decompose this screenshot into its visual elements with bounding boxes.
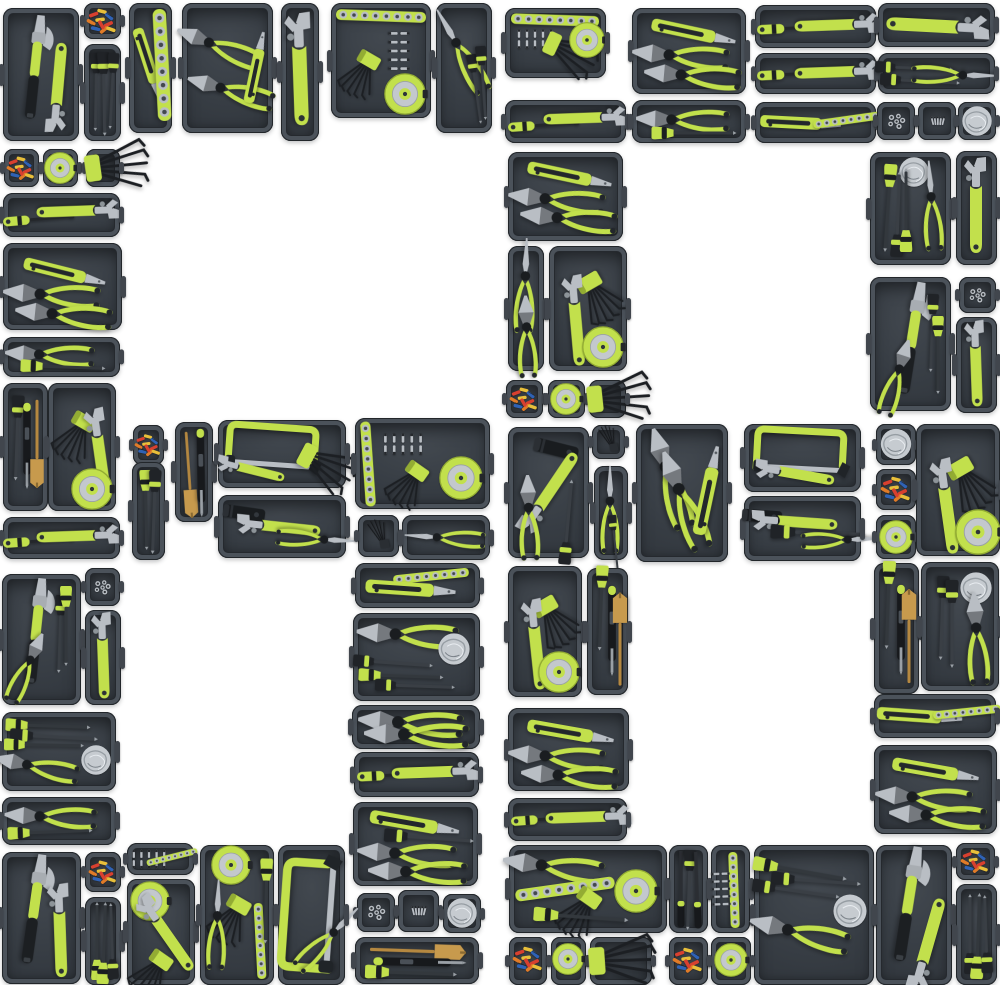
organizer-tray	[85, 897, 121, 985]
organizer-tray	[874, 563, 919, 694]
organizer-bin	[398, 890, 439, 932]
organizer-tray	[632, 100, 746, 143]
tray-contents	[711, 937, 751, 985]
tray-contents	[551, 937, 586, 985]
tray-contents	[587, 568, 628, 695]
combination-pliers-tool	[4, 342, 94, 368]
adjustable-wrench-tool	[964, 320, 987, 407]
tray-contents	[506, 380, 543, 418]
tray-contents	[443, 894, 481, 933]
tape-measure-tool	[715, 944, 750, 977]
tray-contents	[878, 3, 995, 47]
tray-contents	[744, 424, 861, 492]
tray-contents	[84, 44, 121, 141]
combination-pliers-tool	[173, 20, 264, 74]
tray-contents	[590, 937, 652, 985]
organizer-bin	[358, 515, 399, 557]
tray-contents	[870, 152, 951, 265]
steel-wool-tool	[447, 898, 476, 927]
bit-set-tool	[930, 116, 945, 125]
tape-measure-tool	[385, 74, 428, 114]
tray-contents	[755, 5, 876, 48]
organizer-bin	[86, 149, 120, 187]
screwdriver-tool	[593, 565, 609, 650]
combination-pliers-tool	[185, 68, 277, 113]
screwdriver-tool	[358, 668, 443, 684]
organizer-tray	[870, 152, 951, 265]
organizer-bin	[959, 277, 996, 313]
driver-bits-tool	[388, 32, 409, 70]
tray-contents	[85, 897, 121, 985]
organizer-bin	[711, 937, 751, 985]
tape-measure-tool	[570, 23, 607, 58]
tray-contents	[3, 8, 79, 141]
organizer-tray	[916, 424, 1000, 556]
tray-contents	[43, 149, 78, 187]
hacksaw-tool	[280, 852, 343, 974]
organizer-tray	[754, 845, 874, 985]
organizer-tray	[2, 852, 81, 984]
tray-contents	[354, 752, 479, 797]
socket-strip-tool	[933, 704, 1000, 719]
wall-anchors-tool	[6, 156, 34, 180]
organizer-bin	[876, 469, 916, 510]
utility-knife-tool	[692, 445, 724, 536]
adjustable-wrench-tool	[215, 454, 286, 486]
tape-measure-tool	[551, 384, 584, 415]
tray-contents	[876, 469, 916, 510]
organizer-tray	[878, 3, 995, 47]
socket-strip-tool	[813, 111, 881, 129]
adjustable-wrench-tool	[886, 10, 991, 39]
tray-contents	[755, 53, 876, 94]
tray-contents	[959, 277, 996, 313]
tray-contents	[3, 193, 120, 237]
organizer-bin	[669, 937, 708, 985]
organizer-tray	[355, 937, 479, 984]
tray-contents	[48, 383, 116, 511]
wall-anchors-tool	[512, 946, 542, 972]
tray-contents	[132, 462, 165, 560]
tray-contents	[218, 495, 346, 558]
tray-contents	[175, 422, 213, 522]
wall-anchors-tool	[86, 8, 116, 34]
utility-knife-tool	[891, 757, 979, 785]
tray-contents	[874, 563, 919, 694]
adjustable-wrench-tool	[964, 157, 986, 253]
adjustable-wrench-tool	[45, 42, 73, 134]
organizer-tray	[505, 100, 626, 143]
tray-contents	[218, 420, 346, 488]
organizer-tray	[353, 613, 480, 701]
tray-contents	[509, 937, 547, 985]
socket-strip-tool	[336, 9, 426, 23]
hex-key-fan-tool	[587, 934, 657, 985]
voltage-tester-tool	[196, 429, 205, 517]
hex-key-set-tool	[335, 46, 388, 103]
tray-contents	[358, 515, 399, 557]
tray-contents	[127, 843, 194, 875]
driver-bits-tool	[384, 433, 422, 454]
utility-knife-tool	[650, 18, 736, 48]
organizer-tray	[2, 712, 116, 791]
tray-contents	[355, 937, 479, 984]
tray-contents	[508, 246, 544, 371]
tray-contents	[508, 708, 629, 791]
organizer-tray	[129, 3, 172, 133]
tray-contents	[2, 852, 81, 984]
long-nose-pliers-tool	[404, 526, 486, 549]
tray-contents	[436, 3, 492, 133]
organizer-tray	[874, 745, 997, 834]
organizer-bin	[4, 149, 39, 187]
voltage-tester-tool	[23, 403, 30, 489]
organizer-tray	[127, 879, 195, 985]
organizer-bin	[443, 894, 481, 933]
tape-measure-tool	[615, 870, 660, 912]
tray-contents	[281, 3, 319, 141]
organizer-bin	[548, 380, 585, 418]
organizer-tray	[508, 427, 589, 558]
organizer-tray	[436, 3, 492, 133]
organizer-bin	[551, 937, 586, 985]
adjustable-wrench-tool	[235, 514, 321, 542]
black-screwdriver-tool	[9, 395, 25, 480]
tray-contents	[921, 562, 999, 691]
tape-measure-tool	[880, 521, 915, 554]
spade-bit-tool	[370, 942, 466, 960]
tray-contents	[2, 797, 116, 845]
adjustable-wrench-tool	[284, 12, 314, 126]
black-screwdriver-tool	[608, 515, 623, 574]
tray-contents	[876, 515, 916, 559]
tray-contents	[505, 100, 626, 143]
organizer-tray	[711, 845, 750, 933]
tray-contents	[711, 845, 750, 933]
organizer-tray	[508, 152, 623, 241]
organizer-bin	[958, 102, 996, 140]
tray-contents	[632, 100, 746, 143]
spade-bit-tool	[179, 431, 198, 518]
organizer-tray	[127, 843, 194, 875]
combination-pliers-tool	[2, 630, 51, 707]
screwdriver-tool	[4, 738, 84, 751]
tray-contents	[508, 798, 627, 841]
tray-contents	[876, 424, 916, 465]
long-nose-pliers-tool	[600, 466, 619, 554]
organizer-tray	[508, 566, 582, 697]
organizer-bin	[877, 102, 915, 140]
tray-contents	[3, 243, 122, 330]
organizer-bin	[84, 3, 121, 39]
organizer-tray	[508, 246, 544, 371]
tray-contents	[594, 466, 628, 560]
tray-contents	[636, 424, 728, 562]
steel-wool-tool	[438, 633, 469, 664]
hex-key-set-tool	[381, 456, 436, 514]
drill-bits-tool	[598, 424, 618, 453]
tray-contents	[3, 517, 120, 559]
tray-contents	[589, 380, 626, 418]
organizer-bin	[918, 102, 956, 140]
organizer-bin	[85, 568, 120, 606]
sockets-tool	[368, 905, 385, 920]
organizer-tray	[744, 496, 861, 561]
tray-contents	[4, 149, 39, 187]
combination-pliers-tool	[516, 295, 539, 378]
tray-contents	[754, 845, 874, 985]
tray-contents	[2, 574, 81, 705]
tray-contents	[85, 610, 121, 705]
tray-contents	[956, 151, 997, 265]
tray-contents	[918, 102, 956, 140]
wall-anchors-tool	[134, 434, 160, 457]
organizer-bin	[589, 380, 626, 418]
wall-anchors-tool	[960, 849, 988, 873]
organizer-tray	[3, 8, 79, 141]
tray-contents	[127, 879, 195, 985]
file-tool	[677, 851, 684, 927]
organizer-tray	[2, 574, 81, 705]
tray-contents	[200, 845, 274, 985]
tape-measure-tool	[956, 510, 1000, 554]
tape-measure-tool	[212, 846, 253, 884]
tray-contents	[874, 745, 997, 834]
socket-strip-tool	[360, 421, 376, 507]
socket-strip-tool	[152, 9, 171, 122]
tape-measure-tool	[539, 652, 582, 692]
socket-strip-tool	[146, 848, 198, 867]
hex-key-fan-tool	[82, 139, 152, 194]
organizer-tray	[353, 802, 478, 886]
organizer-bin	[592, 425, 625, 459]
tray-contents	[352, 705, 480, 749]
tray-contents	[355, 418, 490, 509]
tray-contents	[509, 845, 667, 933]
tray-contents	[331, 3, 431, 118]
organizer-bin	[133, 425, 164, 465]
steel-wool-tool	[881, 429, 911, 459]
screwdriver-tool	[880, 561, 896, 649]
organizer-tray	[505, 8, 606, 78]
tray-contents	[956, 884, 997, 985]
organizer-tray	[402, 515, 490, 560]
utility-knife-tool	[526, 719, 614, 747]
organizer-tray	[509, 845, 667, 933]
adjustable-wrench-tool	[391, 759, 480, 782]
organizer-tray	[3, 243, 122, 330]
combination-pliers-tool	[963, 592, 992, 686]
combination-pliers-tool	[4, 803, 97, 830]
tray-contents	[133, 425, 164, 465]
tray-contents	[508, 427, 589, 558]
organizer-bin	[43, 149, 78, 187]
tray-contents	[956, 317, 997, 413]
black-screwdriver-tool	[945, 580, 958, 668]
organizer-tray	[956, 884, 997, 985]
adjustable-wrench-tool	[794, 60, 881, 83]
organizer-tray	[3, 383, 48, 511]
organizer-tray	[354, 752, 479, 797]
sockets-tool	[888, 114, 905, 129]
organizer-tray	[755, 102, 876, 143]
tray-contents	[592, 425, 625, 459]
utility-knife-tool	[526, 161, 612, 191]
tray-contents	[916, 424, 1000, 556]
screwdriver-tool	[932, 316, 944, 394]
organizer-tray	[956, 317, 997, 413]
organizer-tray	[3, 193, 120, 237]
adjustable-wrench-tool	[753, 458, 836, 490]
organizer-tray	[3, 517, 120, 559]
organizer-tray	[755, 5, 876, 48]
tape-measure-tool	[440, 457, 485, 499]
adjustable-wrench-tool	[545, 805, 632, 828]
tray-contents	[357, 893, 395, 932]
organizer-tray	[352, 705, 480, 749]
organizer-tray	[281, 3, 319, 141]
tray-contents	[353, 802, 478, 886]
steel-wool-tool	[81, 745, 110, 774]
tape-measure-tool	[583, 327, 626, 367]
organizer-tray	[508, 798, 627, 841]
organizer-tray	[587, 568, 628, 695]
combination-pliers-tool	[0, 748, 81, 786]
tray-contents	[129, 3, 172, 133]
tray-contents	[86, 149, 120, 187]
screwdriver-tool	[60, 586, 72, 666]
organizer-tray	[594, 466, 628, 560]
combination-pliers-tool	[636, 107, 730, 133]
wall-anchors-tool	[880, 476, 910, 502]
tray-contents	[353, 613, 480, 701]
organizer-bin	[357, 893, 395, 932]
tray-contents	[669, 937, 708, 985]
organizer-tray	[85, 610, 121, 705]
wall-anchors-tool	[672, 947, 702, 973]
tray-contents	[878, 53, 995, 94]
tray-contents	[870, 277, 951, 411]
screwdriver-tool	[533, 907, 629, 928]
tray-contents	[3, 337, 120, 377]
organizer-tray	[549, 246, 627, 371]
organizer-tray	[200, 845, 274, 985]
claw-hammer-tool	[20, 854, 58, 966]
organizer-bin	[506, 380, 543, 418]
organizer-tray	[876, 845, 952, 985]
tray-contents	[632, 8, 746, 94]
organizer-tray	[2, 797, 116, 845]
organizer-tray	[870, 277, 951, 411]
combination-pliers-tool	[2, 280, 101, 310]
wall-anchors-tool	[88, 860, 116, 884]
organizer-tray	[3, 337, 120, 377]
tray-contents	[958, 102, 996, 140]
spade-bit-tool	[30, 400, 44, 488]
organizer-tray	[874, 694, 996, 738]
organizer-tray	[956, 151, 997, 265]
organizer-tray	[218, 420, 346, 488]
organizer-tray	[755, 53, 876, 94]
utility-knife-tool	[23, 257, 107, 289]
tape-measure-tool	[45, 153, 78, 184]
tray-contents	[876, 845, 952, 985]
tray-contents	[508, 152, 623, 241]
tray-contents	[877, 102, 915, 140]
adjustable-wrench-tool	[47, 883, 72, 978]
organizer-tray	[508, 708, 629, 791]
black-screwdriver-tool	[558, 479, 578, 565]
organizer-tray	[175, 422, 213, 522]
tray-contents	[508, 566, 582, 697]
tray-contents	[549, 246, 627, 371]
socket-strip-tool	[728, 852, 740, 928]
tray-contents	[874, 694, 996, 738]
screwdriver-tool	[365, 964, 457, 981]
organizer-bin	[85, 852, 121, 892]
wall-anchors-tool	[509, 387, 537, 411]
steel-wool-tool	[962, 106, 991, 135]
tray-contents	[398, 890, 439, 932]
utility-knife-tool	[369, 810, 460, 839]
organizer-bin	[509, 937, 547, 985]
organizer-tray	[636, 424, 728, 562]
organizer-tray	[632, 8, 746, 94]
bit-set-tool	[411, 906, 427, 916]
tray-contents	[548, 380, 585, 418]
organizer-tray	[48, 383, 116, 511]
tray-contents	[85, 568, 120, 606]
organizer-tray	[878, 53, 995, 94]
organizer-tray	[84, 44, 121, 141]
tray-contents	[744, 496, 861, 561]
tape-measure-tool	[553, 944, 586, 975]
drill-bits-tool	[367, 518, 389, 550]
steel-wool-tool	[899, 157, 928, 186]
organizer-bin	[590, 937, 652, 985]
organizer-bin	[876, 424, 916, 465]
organizer-tray	[355, 418, 490, 509]
tray-contents	[2, 712, 116, 791]
organizer-tray	[278, 845, 345, 985]
tool-organizer-product-photo	[0, 0, 1000, 985]
organizer-tray	[182, 3, 273, 133]
tray-contents	[85, 852, 121, 892]
organizer-tray	[355, 563, 480, 608]
sockets-tool	[95, 580, 111, 594]
steel-wool-tool	[833, 894, 866, 927]
tray-contents	[402, 515, 490, 560]
organizer-bin	[956, 843, 995, 880]
tray-contents	[278, 845, 345, 985]
tray-contents	[355, 563, 480, 608]
tray-contents	[505, 8, 606, 78]
tray-contents	[956, 843, 995, 880]
organizer-tray	[132, 462, 165, 560]
hex-key-fan-tool	[585, 371, 653, 424]
black-screwdriver-tool	[375, 679, 455, 694]
tray-contents	[3, 383, 48, 511]
tray-contents	[182, 3, 273, 133]
tray-contents	[84, 3, 121, 39]
organizer-tray	[669, 845, 708, 933]
organizer-tray	[744, 424, 861, 492]
sockets-tool	[970, 288, 986, 302]
tray-contents	[755, 102, 876, 143]
tray-contents	[669, 845, 708, 933]
organizer-tray	[218, 495, 346, 558]
organizer-tray	[331, 3, 431, 118]
